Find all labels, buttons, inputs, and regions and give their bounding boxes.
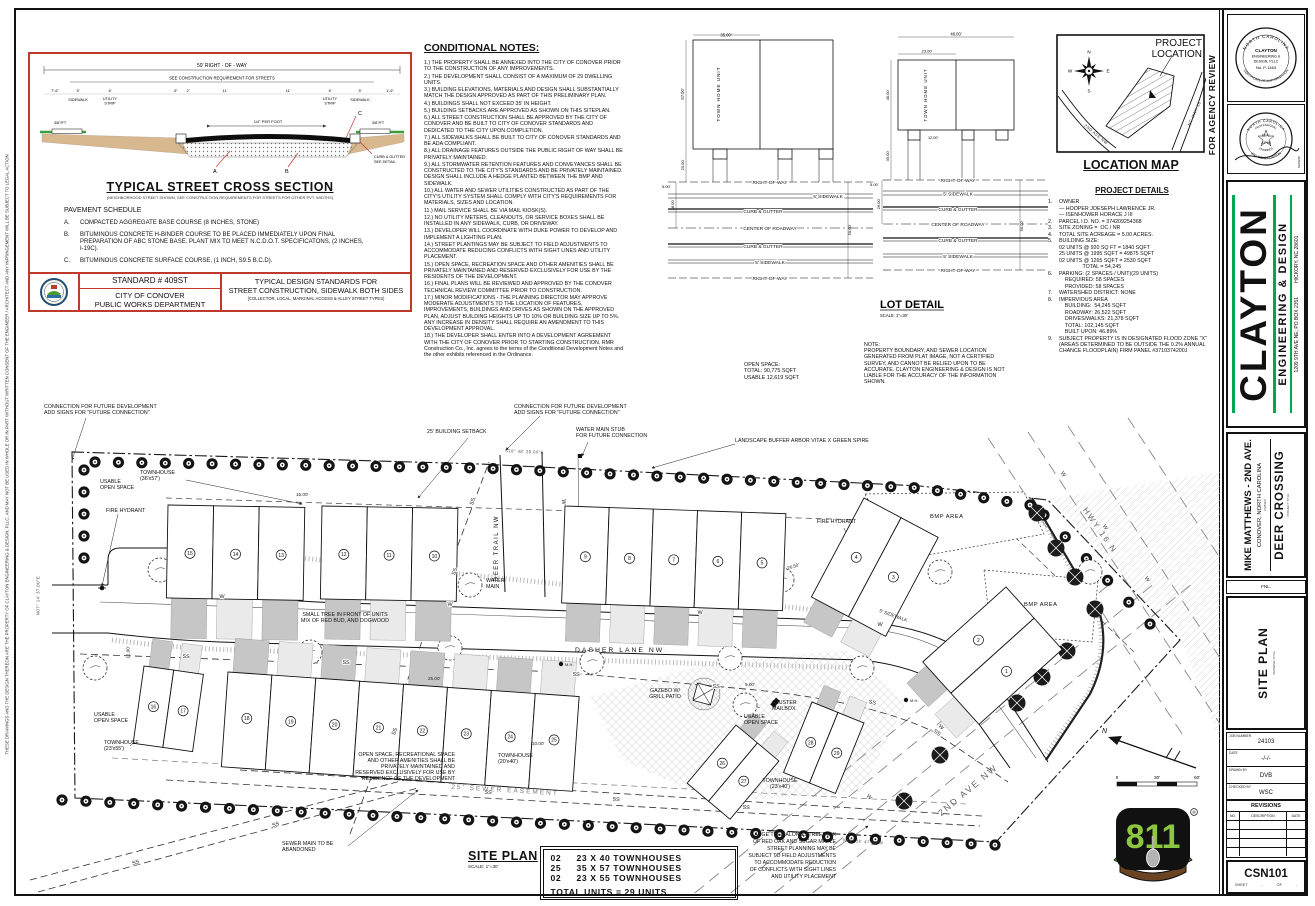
- location-map-title: LOCATION MAP: [1061, 158, 1201, 172]
- svg-text:5' SIDEWALK: 5' SIDEWALK: [813, 194, 843, 200]
- conditional-notes-list: 1.) THE PROPERTY SHALL BE ANNEXED INTO T…: [424, 60, 624, 358]
- svg-text:26: 26: [720, 761, 726, 767]
- firm-seal-icon: NORTH CAROLINA CERTIFICATE OF AUTHORIZAT…: [1229, 16, 1303, 100]
- svg-text:SIDEWALK: SIDEWALK: [350, 98, 370, 102]
- svg-text:46.00': 46.00': [950, 32, 961, 37]
- landscape-buffer-label: LANDSCAPE BUFFER ARBOR VITAE X GREEN SPI…: [735, 438, 869, 444]
- svg-text:29: 29: [834, 751, 840, 757]
- svg-text:SEAL: SEAL: [1262, 134, 1271, 138]
- svg-text:W: W: [1059, 471, 1067, 479]
- dim-15: 15.00': [296, 492, 308, 497]
- conditional-note: 6.) ALL STREET CONSTRUCTION SHALL BE APP…: [424, 115, 624, 134]
- seal-authorization-box: NORTH CAROLINA CERTIFICATE OF AUTHORIZAT…: [1227, 14, 1305, 102]
- conditional-notes-title: CONDITIONAL NOTES:: [424, 42, 624, 54]
- svg-text:24: 24: [507, 735, 513, 741]
- plat-note: NOTE: PROPERTY BOUNDARY, AND SEWER LOCAT…: [864, 342, 1054, 385]
- conditional-note: 9.) ALL STORMWATER RETENTION FEATURES AN…: [424, 162, 624, 187]
- project-detail-row: — HOOPER JOESEPH LAWRENCE JR.: [1048, 206, 1216, 212]
- conditional-note: 8.) ALL DRAINAGE FEATURES OUTSIDE THE PU…: [424, 148, 624, 161]
- svg-text:STRIP: STRIP: [104, 102, 116, 106]
- pe-seal-icon: NORTH CAROLINA WILLIAM S. CLAYTON PROFES…: [1229, 106, 1303, 172]
- svg-text:10: 10: [432, 554, 438, 560]
- plan-sheet: { "sheet":{"left_disclaimer":"THESE DRAW…: [0, 0, 1315, 906]
- svg-text:SEE DETAIL.: SEE DETAIL.: [374, 160, 397, 164]
- svg-text:35.00': 35.00': [885, 150, 890, 161]
- svg-text:RIGHT-OF-WAY: RIGHT-OF-WAY: [753, 180, 789, 186]
- conditional-note: 18.) THE DEVELOPER SHALL ENTER INTO A DE…: [424, 333, 624, 358]
- city-name: CITY OF CONOVER: [80, 291, 220, 300]
- svg-text:SS: SS: [131, 859, 140, 867]
- svg-text:SIDEWALK: SIDEWALK: [68, 98, 88, 102]
- summary-row: 2535 X 57 TOWNHOUSES: [551, 863, 728, 873]
- sheet-number-box: CSN101 SHEET-OF-: [1226, 860, 1306, 894]
- conditional-note: 2.) THE DEVELOPMENT SHALL CONSIST OF A M…: [424, 74, 624, 87]
- conditional-note: 11.) MAIL SERVICE SHALL BE VIA MAIL KIOS…: [424, 208, 624, 214]
- svg-text:CURB & GUTTER: CURB & GUTTER: [374, 155, 405, 159]
- svg-text:CURB & GUTTER: CURB & GUTTER: [743, 244, 783, 250]
- project-detail-row: 1.OWNER: [1048, 199, 1216, 205]
- svg-text:9: 9: [584, 555, 587, 561]
- svg-text:STRIP: STRIP: [324, 102, 336, 106]
- svg-text:12.00': 12.00': [928, 136, 939, 140]
- cross-section-drawing: 50' RIGHT - OF - WAY SEE CONSTRUCTION RE…: [30, 54, 410, 182]
- svg-text:30': 30': [1154, 775, 1160, 780]
- summary-rows: 0223 X 40 TOWNHOUSES2535 X 57 TOWNHOUSES…: [551, 853, 728, 883]
- pavement-schedule-title: PAVEMENT SCHEDULE: [64, 207, 141, 214]
- svg-text:W: W: [865, 793, 873, 801]
- conditional-notes: CONDITIONAL NOTES: 1.) THE PROPERTY SHAL…: [424, 42, 624, 359]
- svg-text:20.00': 20.00': [680, 159, 685, 170]
- svg-text:SS: SS: [572, 672, 580, 678]
- svg-text:1/4" PER FOOT: 1/4" PER FOOT: [254, 119, 283, 124]
- svg-text:SS: SS: [742, 805, 750, 811]
- svg-text:6': 6': [329, 89, 332, 93]
- svg-text:20: 20: [332, 722, 338, 728]
- svg-text:ENGINEER: ENGINEER: [1259, 146, 1274, 152]
- svg-text:CURB & GUTTER: CURB & GUTTER: [938, 238, 978, 244]
- stone-base: [178, 143, 358, 157]
- drawing-title: SITE PLAN DRAWING TITLE: [1226, 596, 1306, 730]
- svg-text:CLAYTON: CLAYTON: [1255, 48, 1277, 53]
- water-stub-label: WATER MAIN STUB FOR FUTURE CONNECTION: [576, 427, 647, 439]
- dasher-lane-label: DASHER LANE NW: [575, 647, 664, 654]
- project-title: DEER CROSSING: [1274, 450, 1286, 560]
- svg-text:CURB & GUTTER: CURB & GUTTER: [743, 209, 783, 215]
- svg-text:5': 5': [359, 89, 362, 93]
- usable-open-space-label-2: USABLE OPEN SPACE: [744, 714, 778, 726]
- conditional-note: 4.) BUILDINGS SHALL NOT EXCEED 35' IN HE…: [424, 101, 624, 107]
- project-detail-row: TOTAL: 102,145 SQFT: [1048, 323, 1216, 329]
- standard-number: STANDARD # 409ST: [80, 274, 220, 289]
- svg-text:SS: SS: [271, 821, 280, 829]
- svg-text:11': 11': [223, 89, 228, 93]
- svg-text:CENTER OF ROADWAY: CENTER OF ROADWAY: [743, 226, 797, 232]
- svg-text:5' SIDEWALK: 5' SIDEWALK: [943, 192, 973, 198]
- future-connection-label-1: CONNECTION FOR FUTURE DEVELOPMENT ADD SI…: [44, 404, 157, 416]
- bmp-area-label-2: BMP AREA: [1024, 602, 1058, 608]
- svg-text:W: W: [560, 499, 566, 505]
- pavement-schedule-items: A.COMPACTED AGGREGATE BASE COURSE (8 INC…: [64, 220, 364, 270]
- lot-detail-scale: SCALE: 1"=30': [880, 313, 908, 318]
- svg-text:15: 15: [187, 551, 193, 557]
- svg-text:3: 3: [892, 575, 895, 581]
- svg-text:No. P-1463: No. P-1463: [1256, 65, 1277, 70]
- svg-text:SS: SS: [612, 797, 620, 803]
- svg-text:S: S: [1087, 89, 1090, 94]
- project-info: MIKE MATTHEWS - 2ND AVE. CONOVER, NORTH …: [1226, 432, 1306, 578]
- svg-text:14: 14: [233, 552, 239, 558]
- project-details: PROJECT DETAILS 1.OWNER— HOOPER JOESEPH …: [1048, 186, 1216, 354]
- townhouse-20x40-label: TOWNHOUSE (20'x40'): [498, 753, 533, 765]
- project-detail-row: TOTAL = 54,245: [1048, 264, 1216, 270]
- svg-text:SS: SS: [342, 660, 350, 666]
- svg-text:28: 28: [808, 740, 814, 746]
- summary-row: 0223 X 40 TOWNHOUSES: [551, 853, 728, 863]
- project-detail-row: 9.SUBJECT PROPERTY IS IN DESIGNATED FLOO…: [1048, 336, 1216, 354]
- deer-trail-label: DEER TRAIL NW: [493, 513, 501, 583]
- project-detail-row: 02 UNITS @ 920 SQ FT = 1840 SQFT: [1048, 245, 1216, 251]
- project-detail-row: — ISENHOWER HORACE J III: [1048, 212, 1216, 218]
- revisions-title: REVISIONS: [1227, 801, 1305, 812]
- conditional-note: 16.) FINAL PLANS WILL BE REVIEWED AND AP…: [424, 281, 624, 294]
- project-detail-row: ROADWAY: 26,522 SQFT: [1048, 310, 1216, 316]
- scale-bar: 0 30' 60': [1116, 775, 1200, 786]
- svg-text:5' SIDEWALK: 5' SIDEWALK: [943, 254, 973, 260]
- svg-text:N: N: [1102, 728, 1108, 735]
- svg-text:UTILITY: UTILITY: [323, 97, 338, 101]
- svg-text:7: 7: [672, 558, 675, 564]
- dim-12: 12.00': [126, 646, 131, 658]
- drawn-by-field: DRAWN BYDVB: [1227, 767, 1305, 784]
- project-client: MIKE MATTHEWS - 2ND AVE.: [1243, 439, 1254, 571]
- firm-name: CLAYTON: [1235, 206, 1273, 402]
- svg-text:2': 2': [187, 89, 190, 93]
- project-detail-row: 4.TOTAL SITE ACREAGE = 5.00 ACRES.: [1048, 232, 1216, 238]
- svg-text:42788: 42788: [1261, 141, 1271, 145]
- svg-text:6': 6': [109, 89, 112, 93]
- conditional-note: 10.) ALL WATER AND SEWER UTILITIES CONST…: [424, 188, 624, 207]
- townhouse-23x40-label: TOWNHOUSE (23'x40'): [745, 778, 815, 790]
- conditional-note: 17.) MINOR MODIFICATIONS - THE PLANNING …: [424, 295, 624, 333]
- construction-dim: SEE CONSTRUCTION REQUIREMENT FOR STREETS: [169, 76, 275, 81]
- conditional-note: 13.) DEVELOPER WILL COORDINATE WITH DUKE…: [424, 228, 624, 241]
- svg-text:19: 19: [288, 719, 294, 725]
- svg-text:RIGHT-OF-WAY: RIGHT-OF-WAY: [941, 178, 977, 184]
- project-detail-row: BUILT UPON: 46.89%: [1048, 329, 1216, 335]
- svg-text:CENTER OF ROADWAY: CENTER OF ROADWAY: [931, 222, 985, 228]
- conditional-note: 14.) STREET PLANTINGS MAY BE SUBJECT TO …: [424, 242, 624, 261]
- svg-text:7'-6": 7'-6": [51, 89, 59, 93]
- summary-total: TOTAL UNITS = 29 UNITS: [551, 887, 728, 897]
- svg-text:6": 6": [174, 89, 178, 93]
- svg-text:6: 6: [716, 559, 719, 565]
- svg-text:SS: SS: [469, 497, 477, 506]
- svg-text:16: 16: [151, 705, 157, 711]
- agency-review-stamp: FOR AGENCY REVIEW: [1206, 40, 1218, 170]
- pavement-schedule-item: A.COMPACTED AGGREGATE BASE COURSE (8 INC…: [64, 220, 364, 227]
- svg-text:TOWN HOME UNIT: TOWN HOME UNIT: [716, 66, 721, 121]
- project-detail-row: BUILDING: 54,245 SQFT: [1048, 303, 1216, 309]
- project-title-tag: PROJECT TITLE: [1286, 494, 1290, 517]
- svg-text:17: 17: [180, 709, 186, 715]
- svg-text:25: 25: [551, 738, 557, 744]
- svg-text:13: 13: [278, 553, 284, 559]
- summary-row: 0223 X 55 TOWNHOUSES: [551, 873, 728, 883]
- checked-by-field: CHECKED BYWSC: [1227, 784, 1305, 801]
- svg-text:E: E: [1106, 69, 1109, 74]
- lot-detail: 35.00' 57.00' 20.00' 5.00' 28.00' 50.00'…: [658, 32, 1050, 324]
- footer-title3: (COLLECTOR, LOCAL, MARGINAL ACCESS & ALL…: [222, 296, 410, 301]
- pe-seal-box: NORTH CAROLINA WILLIAM S. CLAYTON PROFES…: [1227, 104, 1305, 174]
- pavement-schedule-item: C.BITUMINOUS CONCRETE SURFACE COURSE, (1…: [64, 258, 364, 265]
- svg-text:ENGINEERING &: ENGINEERING &: [1252, 55, 1281, 59]
- svg-text:01/06/25: 01/06/25: [1297, 156, 1301, 168]
- project-detail-row: 5.BUILDING SIZE:: [1048, 238, 1216, 244]
- open-space-recreation-note: OPEN SPACE, RECREATIONAL SPACE AND OTHER…: [300, 752, 455, 782]
- conditional-note: 12.) NO UTILITY METERS, CLEANOUTS, OR SE…: [424, 215, 624, 228]
- project-detail-row: 02 UNITS @ 1265 SQFT = 2530 SQFT: [1048, 258, 1216, 264]
- svg-text:5.00': 5.00': [662, 184, 671, 189]
- project-detail-row: 6.PARKING: (2 SPACES / UNIT)(29 UNITS): [1048, 271, 1216, 277]
- svg-text:50.00': 50.00': [847, 224, 852, 235]
- bearing-left: N07° 14' 37.00"E: [35, 561, 42, 631]
- svg-text:5.00': 5.00': [870, 182, 879, 187]
- svg-text:B: B: [285, 169, 289, 175]
- project-detail-row: REQUIRED: 58 SPACES: [1048, 277, 1216, 283]
- revisions-box: REVISIONS NO. DESCRIPTION DATE: [1226, 800, 1306, 858]
- dim-25: 25.00': [428, 676, 440, 681]
- dim-10: 10.00': [532, 741, 544, 746]
- footer-title2: STREET CONSTRUCTION, SIDEWALK BOTH SIDES: [222, 286, 410, 295]
- townhouse-36x57-label: TOWNHOUSE (36'x57'): [140, 470, 175, 482]
- conditional-note: 1.) THE PROPERTY SHALL BE ANNEXED INTO T…: [424, 60, 624, 73]
- date-field: DATE-/-/-: [1227, 750, 1305, 767]
- title-block-separator2: [1222, 10, 1224, 894]
- svg-text:5' SIDEWALK: 5' SIDEWALK: [755, 260, 785, 266]
- svg-text:60': 60': [1194, 775, 1200, 780]
- lot-detail-title: LOT DETAIL: [880, 299, 944, 311]
- sewer-abandoned-label: SEWER MAIN TO BE ABANDONED: [282, 841, 333, 853]
- svg-text:SS: SS: [712, 684, 720, 691]
- townhouse-23x55-label: TOWNHOUSE (23'x55'): [104, 740, 139, 752]
- project-detail-row: 2.PARCEL I.D. NO. = 374209254368: [1048, 219, 1216, 225]
- svg-text:CURB & GUTTER: CURB & GUTTER: [938, 207, 978, 213]
- svg-text:18: 18: [244, 716, 250, 722]
- svg-text:0: 0: [1116, 775, 1119, 780]
- cross-section-subtitle: (NEIGHBORHOOD STREET SHOWN, SEE CONSTRUC…: [30, 195, 410, 200]
- svg-text:W: W: [219, 594, 225, 600]
- svg-text:M.H.: M.H.: [565, 662, 573, 667]
- svg-text:22: 22: [420, 729, 426, 735]
- project-detail-row: 7.WATERSHED DISTRICT: NONE: [1048, 290, 1216, 296]
- svg-text:C: C: [358, 111, 362, 117]
- svg-text:SS: SS: [182, 654, 190, 660]
- svg-text:3/8"/FT: 3/8"/FT: [54, 121, 67, 125]
- svg-text:40.00': 40.00': [885, 89, 890, 100]
- project-detail-row: 3.SITE ZONING = OC / NR: [1048, 225, 1216, 231]
- svg-text:35.00': 35.00': [720, 33, 731, 38]
- svg-text:RIGHT-OF-WAY: RIGHT-OF-WAY: [753, 276, 789, 282]
- svg-text:12: 12: [341, 552, 347, 558]
- svg-text:4: 4: [855, 555, 858, 561]
- svg-text:57.00': 57.00': [680, 88, 685, 99]
- project-detail-row: 25 UNITS @ 1995 SQFT = 49875 SQFT: [1048, 251, 1216, 257]
- svg-text:TOWN HOME UNIT: TOWN HOME UNIT: [923, 68, 928, 121]
- firm-logo: CLAYTON ENGINEERING & DESIGN 1209 9TH AV…: [1226, 180, 1306, 428]
- sheet-number: CSN101: [1228, 868, 1304, 880]
- svg-text:DESIGN, PLLC: DESIGN, PLLC: [1254, 60, 1279, 64]
- project-owner-tag: OWNER: [1263, 499, 1267, 511]
- cross-section-footer: STANDARD # 409ST CITY OF CONOVER PUBLIC …: [30, 272, 410, 310]
- job-number-field: JOB NUMBER24103: [1227, 733, 1305, 750]
- firm-address2: HICKORY, NC 28601: [1294, 236, 1300, 283]
- svg-text:A: A: [213, 169, 217, 175]
- asphalt: [186, 134, 350, 143]
- svg-text:RIGHT-OF-WAY: RIGHT-OF-WAY: [941, 268, 977, 274]
- svg-text:2: 2: [977, 638, 980, 644]
- project-details-title: PROJECT DETAILS: [1048, 186, 1216, 195]
- bmp-area-label-1: BMP AREA: [930, 514, 964, 520]
- svg-text:5': 5': [77, 89, 80, 93]
- building-setback-label: 25' BUILDING SETBACK: [427, 429, 487, 435]
- pavement-schedule-item: B.BITUMINOUS CONCRETE H-BINDER COURSE TO…: [64, 232, 364, 253]
- conditional-note: 5.) BUILDING SETBACKS ARE APPROVED AS SH…: [424, 108, 624, 114]
- svg-text:23.00': 23.00': [922, 49, 933, 54]
- svg-text:11': 11': [286, 89, 291, 93]
- cluster-mailbox-label: CLUSTER MAILBOX: [772, 700, 797, 712]
- svg-text:1: 1: [1005, 669, 1008, 675]
- svg-text:UTILITY: UTILITY: [103, 97, 118, 101]
- cross-section-detail: 50' RIGHT - OF - WAY SEE CONSTRUCTION RE…: [28, 52, 412, 312]
- fire-hydrant-label-1: FIRE HYDRANT: [106, 508, 145, 514]
- copyright-disclaimer: THESE DRAWINGS AND THE DESIGN THEREON AR…: [3, 30, 12, 880]
- project-detail-row: PROVIDED: 58 SPACES: [1048, 284, 1216, 290]
- row-dim: 50' RIGHT - OF - WAY: [197, 63, 248, 69]
- project-detail-row: DRIVES/WALKS: 21,378 SQFT: [1048, 316, 1216, 322]
- svg-text:8: 8: [628, 556, 631, 562]
- future-connection-label-2: CONNECTION FOR FUTURE DEVELOPMENT ADD SI…: [514, 404, 627, 416]
- site-plan-title: SITE PLAN SCALE: 1"=30': [468, 849, 538, 869]
- city-seal-icon: [39, 277, 69, 307]
- svg-text:N: N: [1087, 50, 1090, 55]
- usable-open-space-label-1: USABLE OPEN SPACE: [100, 479, 134, 491]
- svg-text:CERTIFICATE OF AUTHORIZATION: CERTIFICATE OF AUTHORIZATION: [1243, 68, 1290, 83]
- project-details-rows: 1.OWNER— HOOPER JOESEPH LAWRENCE JR.— IS…: [1048, 199, 1216, 354]
- firm-address1: 1209 9TH AVE NE; PO BOX 2351: [1294, 297, 1300, 373]
- strip-box: FNL.: [1226, 580, 1306, 594]
- fire-hydrant-label-2: FIRE HYDRANT: [817, 519, 856, 525]
- cross-section-title: TYPICAL STREET CROSS SECTION: [30, 180, 410, 194]
- fields-box: JOB NUMBER24103 DATE-/-/- DRAWN BYDVB CH…: [1226, 732, 1306, 800]
- usable-open-space-label-3: USABLE OPEN SPACE: [94, 712, 128, 724]
- open-space-note: OPEN SPACE:TOTAL: 90,775 SQFTUSABLE 12,6…: [744, 362, 799, 381]
- conditional-note: 7.) ALL SIDEWALKS SHALL BE BUILT TO CITY…: [424, 135, 624, 148]
- svg-text:5: 5: [761, 561, 764, 567]
- svg-text:M.H.: M.H.: [910, 698, 918, 703]
- svg-text:3/8"/FT: 3/8"/FT: [372, 121, 385, 125]
- svg-text:SS: SS: [451, 567, 459, 576]
- svg-text:50.00': 50.00': [1019, 220, 1024, 231]
- svg-text:11: 11: [387, 553, 392, 559]
- dept-name: PUBLIC WORKS DEPARTMENT: [80, 300, 220, 309]
- svg-text:26.00': 26.00': [876, 198, 881, 209]
- small-tree-label: SMALL TREE IN FRONT OF UNITS MIX OF RED …: [280, 612, 410, 624]
- conditional-note: 15.) OPEN SPACE, RECREATION SPACE AND OT…: [424, 262, 624, 281]
- svg-text:23: 23: [463, 732, 469, 738]
- dim-9: 9.00': [745, 682, 755, 687]
- footer-title1: TYPICAL DESIGN STANDARDS FOR: [222, 277, 410, 286]
- svg-text:21: 21: [376, 725, 382, 731]
- gazebo-label: GAZEBO W/ GRILL PATIO: [630, 688, 700, 700]
- conditional-note: 3.) BUILDING ELEVATIONS, MATERIALS AND D…: [424, 87, 624, 100]
- project-detail-row: 8.IMPERVIOUS AREA: [1048, 297, 1216, 303]
- call-811-logo: 811 ®: [1114, 808, 1197, 881]
- firm-tagline: ENGINEERING & DESIGN: [1277, 222, 1289, 385]
- svg-text:1'-6": 1'-6": [386, 89, 394, 93]
- unit-summary-table: 0223 X 40 TOWNHOUSES2535 X 57 TOWNHOUSES…: [540, 846, 738, 900]
- project-location-callout: PROJECT LOCATION: [1120, 38, 1202, 60]
